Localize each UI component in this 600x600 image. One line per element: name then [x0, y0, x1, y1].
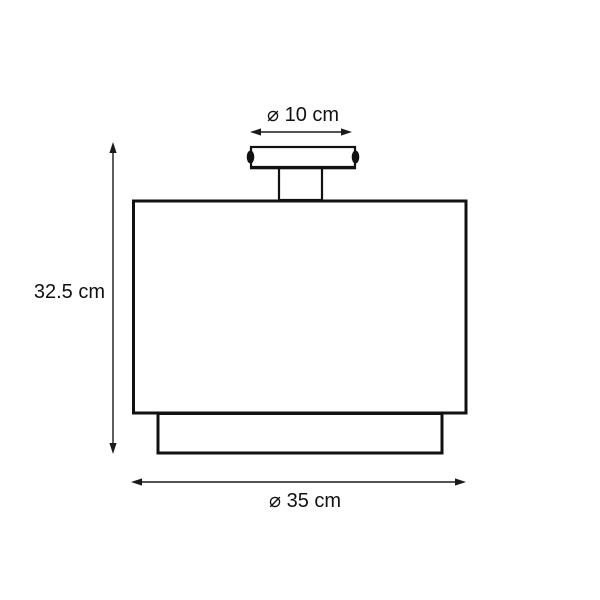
canopy-right-clip: [352, 151, 360, 164]
bottom-diameter-dimension-line: [131, 478, 466, 485]
height-label: 32.5 cm: [34, 280, 105, 304]
top-diameter-label: ⌀ 10 cm: [267, 103, 339, 127]
lamp-shade: [134, 201, 467, 413]
lamp-stem: [279, 167, 322, 200]
arrowhead-left-icon: [250, 128, 261, 135]
bottom-diameter-label: ⌀ 35 cm: [269, 489, 341, 513]
canopy-left-clip: [247, 151, 255, 164]
height-dimension-line: [109, 142, 116, 454]
lamp-diffuser: [158, 414, 442, 454]
top-diameter-dimension-line: [250, 128, 352, 135]
arrowhead-up-icon: [109, 142, 116, 153]
arrowhead-left-icon: [131, 478, 142, 485]
arrowhead-right-icon: [455, 478, 466, 485]
arrowhead-down-icon: [109, 443, 116, 454]
arrowhead-right-icon: [341, 128, 352, 135]
lamp-outline: [134, 147, 467, 453]
lamp-canopy: [251, 147, 355, 168]
dimension-diagram: ⌀ 10 cm 32.5 cm ⌀ 35 cm: [0, 0, 600, 600]
